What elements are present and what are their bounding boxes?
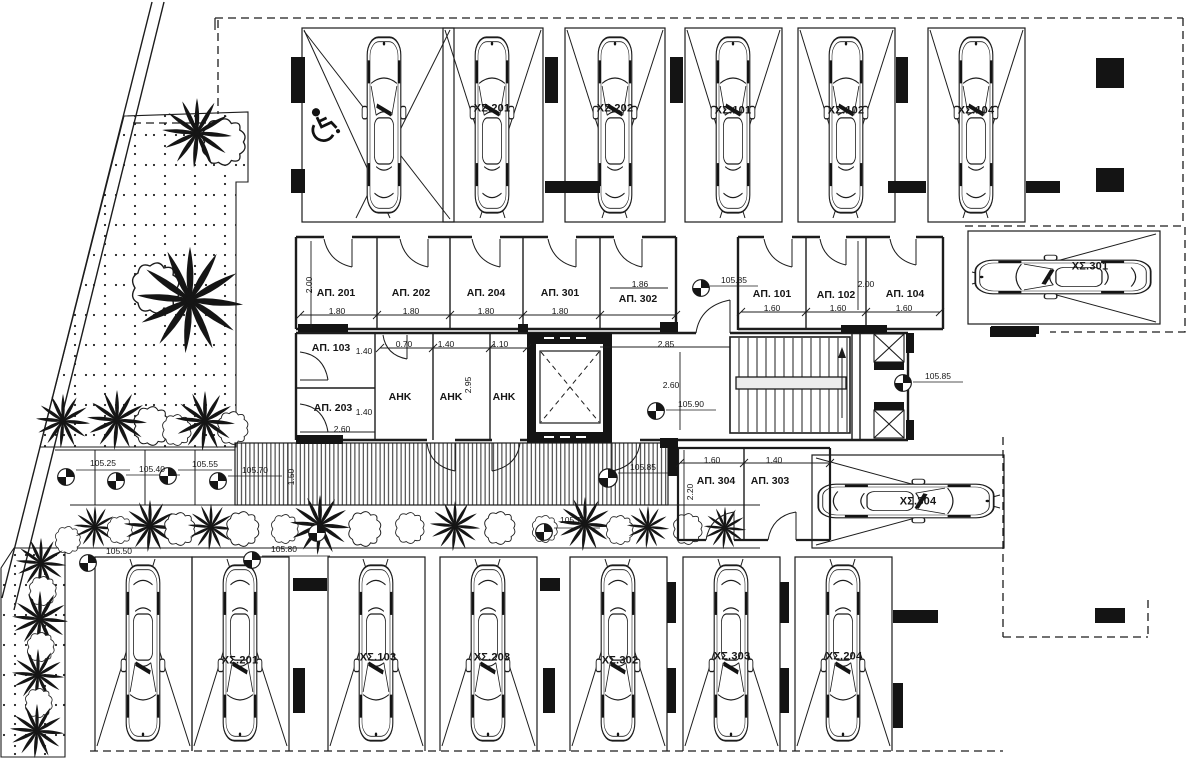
shrub-icon (30, 577, 57, 606)
room-label-ap203: ΑΠ. 203 (314, 403, 353, 414)
storage-row-1 (296, 237, 943, 330)
level-marker-icon (599, 469, 617, 487)
dim-1.86: 1.86 (632, 280, 649, 289)
stall-label-top-3: ΧΣ.101 (715, 106, 752, 117)
dim-1.80: 1.80 (329, 307, 346, 316)
dim-1.40: 1.40 (766, 456, 783, 465)
car-icon (121, 565, 165, 740)
car-icon (596, 565, 640, 740)
level-105.55: 105.55 (192, 460, 218, 469)
dim-1.80: 1.80 (403, 307, 420, 316)
dim-1.40: 1.40 (356, 347, 373, 356)
level-105.50: 105.50 (106, 547, 132, 556)
room-label-ap204: ΑΠ. 204 (467, 288, 506, 299)
room-label-ap302: ΑΠ. 302 (619, 294, 658, 305)
room-label-ahk-3: ΑΗΚ (493, 392, 516, 403)
stall-label-bottom-5: ΧΣ.303 (714, 652, 751, 663)
car-icon (470, 37, 514, 212)
room-label-ap304: ΑΠ. 304 (697, 476, 736, 487)
shrub-icon (485, 512, 515, 545)
level-marker-icon (895, 375, 912, 392)
dim-2.60: 2.60 (663, 381, 680, 390)
dim-2.20: 2.20 (686, 484, 695, 501)
shrub-icon (607, 516, 634, 545)
dim-2.00: 2.00 (858, 280, 875, 289)
shrub-icon (218, 412, 248, 445)
level-105.25: 105.25 (90, 459, 116, 468)
room-label-ap301: ΑΠ. 301 (541, 288, 580, 299)
shrub-icon (227, 512, 259, 547)
dim-1.60: 1.60 (896, 304, 913, 313)
dim-1.40: 1.40 (356, 408, 373, 417)
room-label-ahk-1: ΑΗΚ (389, 392, 412, 403)
elevator-shaft (527, 333, 612, 443)
level-105.40: 105.40 (139, 465, 165, 474)
dim-2.60: 2.60 (334, 425, 351, 434)
level-marker-icon (309, 525, 326, 542)
car-icon (218, 565, 262, 740)
room-label-ap201: ΑΠ. 201 (317, 288, 356, 299)
shrub-icon (396, 513, 424, 544)
stall-label-top-5: ΧΣ.104 (958, 106, 995, 117)
shrub-icon (272, 515, 299, 544)
room-label-ap102: ΑΠ. 102 (817, 290, 856, 301)
palm-tree-icon (430, 501, 480, 551)
door-arcs (324, 239, 916, 267)
stall-label-bottom-6: ΧΣ.204 (826, 652, 863, 663)
stall-label-top-2: ΧΣ.202 (597, 104, 634, 115)
room-label-ap104: ΑΠ. 104 (886, 289, 925, 300)
stall-label-xs301: ΧΣ.301 (1072, 262, 1109, 273)
level-marker-icon (536, 524, 553, 541)
stall-label-bottom-3: ΧΣ.203 (474, 653, 511, 664)
stall-label-bottom-1: ΧΣ.201 (222, 656, 259, 667)
room-label-ap101: ΑΠ. 101 (753, 289, 792, 300)
car-icon (711, 37, 755, 212)
level-105.75: 105.75 (560, 516, 586, 525)
parking-floor-plan: ΧΣ.201 ΧΣ.202 ΧΣ.101 ΧΣ.102 ΧΣ.104 ΧΣ.30… (0, 0, 1200, 758)
shrub-icon (107, 517, 132, 544)
level-105.85: 105.85 (925, 372, 951, 381)
dim-2.00: 2.00 (305, 277, 314, 294)
wheelchair-icon (304, 103, 341, 144)
stall-label-bottom-2: ΧΣ.103 (360, 653, 397, 664)
car-icon (824, 37, 868, 212)
level-marker-icon (693, 280, 710, 297)
level-marker-icon (58, 469, 75, 486)
room-label-ahk-2: ΑΗΚ (440, 392, 463, 403)
dim-1.60: 1.60 (830, 304, 847, 313)
dim-1.60: 1.60 (704, 456, 721, 465)
room-label-ap303: ΑΠ. 303 (751, 476, 790, 487)
stall-label-bottom-4: ΧΣ.302 (602, 656, 639, 667)
shrub-icon (349, 512, 381, 547)
dim-1.10: 1.10 (492, 340, 509, 349)
dim-1.80: 1.80 (552, 307, 569, 316)
dim-1.80: 1.80 (478, 307, 495, 316)
staircase (730, 337, 850, 433)
car-icon (362, 37, 406, 212)
level-marker-icon (80, 555, 97, 572)
shrub-icon (28, 633, 55, 662)
dim-1.50: 1.50 (287, 469, 296, 486)
level-105.70: 105.70 (242, 466, 268, 475)
level-105.85: 105.85 (630, 463, 656, 472)
stall-label-top-4: ΧΣ.102 (828, 106, 865, 117)
level-105.85: 105.85 (721, 276, 747, 285)
dim-1.40: 1.40 (438, 340, 455, 349)
dim-2.85: 2.85 (658, 340, 675, 349)
level-105.90: 105.90 (678, 400, 704, 409)
stall-label-top-1: ΧΣ.201 (474, 104, 511, 115)
dim-1.60: 1.60 (764, 304, 781, 313)
walls (291, 57, 1125, 728)
level-marker-icon (244, 552, 261, 569)
level-marker-icon (108, 473, 125, 490)
dim-0.70: 0.70 (396, 340, 413, 349)
level-marker-icon (210, 473, 227, 490)
level-105.80: 105.80 (271, 545, 297, 554)
shrub-icon (165, 513, 195, 546)
dim-2.95: 2.95 (464, 377, 473, 394)
car-icon (954, 37, 998, 212)
level-marker-icon (648, 403, 665, 420)
room-label-ap202: ΑΠ. 202 (392, 288, 431, 299)
car-icon (975, 255, 1150, 299)
storage-row-2 (296, 300, 908, 440)
room-label-ap103: ΑΠ. 103 (312, 343, 351, 354)
stall-label-xs304: ΧΣ.304 (900, 497, 937, 508)
shrub-icon (55, 527, 80, 554)
